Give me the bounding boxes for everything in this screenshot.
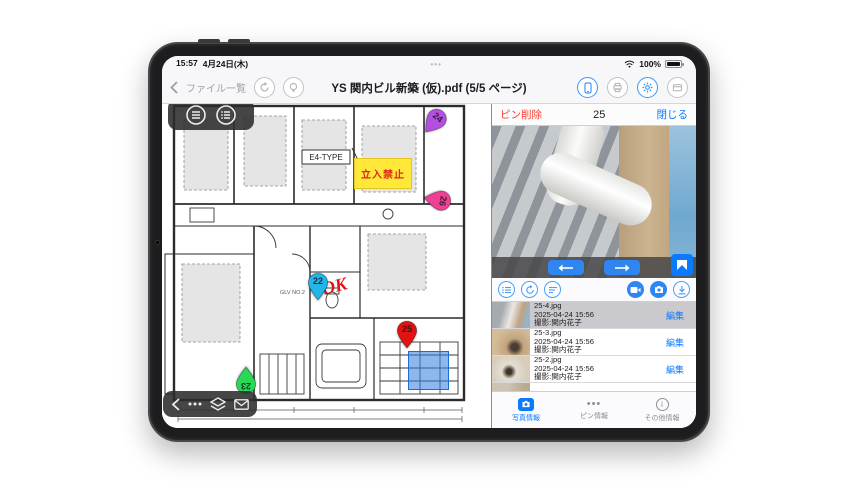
photo-photographer: 撮影:関内花子 [534,319,662,327]
pin-list-button[interactable] [185,104,207,126]
pin-number: 22 [307,276,329,286]
refresh-button[interactable] [254,77,275,98]
canvas-tool-pill [163,391,257,417]
back-chevron-icon[interactable] [170,81,178,94]
floorplan-canvas[interactable]: E4-TYPE GLV NO.2 立入禁止 OK 24 26 [162,104,492,428]
photo-list-row[interactable]: 25-1.jpg [492,383,696,391]
photo-list-row[interactable]: 25-3.jpg 2025-04-24 15:56 撮影:関内花子 編集 [492,329,696,356]
volume-down-button [228,39,250,43]
pin-panel-header: ピン削除 25 閉じる [492,104,696,126]
tab-pin-info[interactable]: ••• ピン情報 [560,392,628,428]
map-pin-22[interactable]: 22 [307,272,329,302]
volume-up-button [198,39,220,43]
windows-button[interactable] [667,77,688,98]
edit-photo-button[interactable]: 編集 [666,302,696,328]
photo-list-row[interactable]: 25-2.jpg 2025-04-24 15:56 撮影:関内花子 編集 [492,356,696,383]
edit-photo-button[interactable]: 編集 [666,329,696,355]
multitask-dots: ••• [430,60,441,69]
photo-nav-bar [492,257,696,278]
photo-thumbnail [492,329,530,355]
download-icon [677,285,687,295]
photo-photographer: 撮影:関内花子 [534,373,662,381]
delete-pin-button[interactable]: ピン削除 [500,107,542,122]
pin-drop-button[interactable] [283,77,304,98]
clock: 15:57 [176,58,198,70]
keepout-annotation[interactable]: 立入禁止 [354,158,412,189]
arrow-right-icon [614,264,630,272]
info-tab-icon: i [656,398,669,411]
take-photo-button[interactable] [650,281,667,298]
refresh-icon [259,82,270,93]
pin-number: 23 [235,381,257,391]
photo-toolbar [492,278,696,302]
plan-room-label: GLV NO.2 [280,290,305,296]
photo-viewer[interactable] [492,126,696,278]
more-tools-button[interactable] [188,402,202,406]
tab-photo-info[interactable]: 写真情報 [492,392,560,428]
area-highlight-annotation[interactable] [408,351,449,390]
edit-photo-button[interactable]: 編集 [666,356,696,382]
plan-type-label: E4-TYPE [309,153,342,162]
mail-button[interactable] [234,399,249,410]
photo-list-view-button[interactable] [498,281,515,298]
sort-list-button[interactable] [544,281,561,298]
device-bookmark-icon [583,82,593,94]
pin-number: 25 [396,324,418,334]
close-panel-button[interactable]: 閉じる [657,107,689,122]
bookmark-button[interactable] [577,77,598,98]
previous-photo-button[interactable] [548,260,584,275]
camera-tab-icon [518,398,534,411]
ipad-device: 15:57 4月24日(木) ••• 100% ファイル一覧 [148,42,710,442]
arrow-left-icon [558,264,574,272]
print-button[interactable] [607,77,628,98]
import-photo-button[interactable] [673,281,690,298]
collapse-chevron-button[interactable] [171,398,180,411]
gear-icon [642,82,653,93]
date: 4月24日(木) [203,58,248,70]
pin-number-title: 25 [593,109,605,121]
tab-other-info[interactable]: i その他情報 [628,392,696,428]
tab-label: 写真情報 [512,413,540,423]
printer-icon [612,82,623,93]
photo-list: 25-4.jpg 2025-04-24 15:56 撮影:関内花子 編集 25-… [492,302,696,391]
map-pin-25[interactable]: 25 [396,320,418,350]
battery-icon [665,60,682,68]
photo-photographer: 撮影:関内花子 [534,346,662,354]
layer-tool-pill [168,104,254,130]
photo-thumbnail [492,383,530,391]
tab-label: その他情報 [645,413,680,423]
layers-button[interactable] [210,397,226,411]
refresh-photos-button[interactable] [521,281,538,298]
flag-icon [675,258,689,272]
photo-list-row[interactable]: 25-4.jpg 2025-04-24 15:56 撮影:関内花子 編集 [492,302,696,329]
split-window-icon [672,82,683,93]
next-photo-button[interactable] [604,260,640,275]
record-video-button[interactable] [627,281,644,298]
annotation-list-button[interactable] [215,104,237,126]
video-camera-icon [630,286,641,294]
battery-percent: 100% [639,59,661,69]
panel-tab-bar: 写真情報 ••• ピン情報 i その他情報 [492,391,696,428]
photo-thumbnail [492,356,530,382]
wifi-icon [624,60,635,69]
navigation-bar: ファイル一覧 YS 関内ビル新築 (仮).pdf (5/5 ページ) [162,72,696,104]
photo-thumbnail [492,302,530,328]
tab-label: ピン情報 [580,411,608,421]
flag-button[interactable] [671,254,693,276]
pin-detail-panel: ピン削除 25 閉じる [492,104,696,428]
status-bar: 15:57 4月24日(木) ••• 100% [162,56,696,72]
pin-drop-icon [288,82,299,93]
camera-icon [654,285,664,294]
front-camera [155,240,160,245]
ellipsis-tab-icon: ••• [587,399,602,409]
screen: 15:57 4月24日(木) ••• 100% ファイル一覧 [162,56,696,428]
back-button[interactable]: ファイル一覧 [186,80,246,95]
settings-button[interactable] [637,77,658,98]
